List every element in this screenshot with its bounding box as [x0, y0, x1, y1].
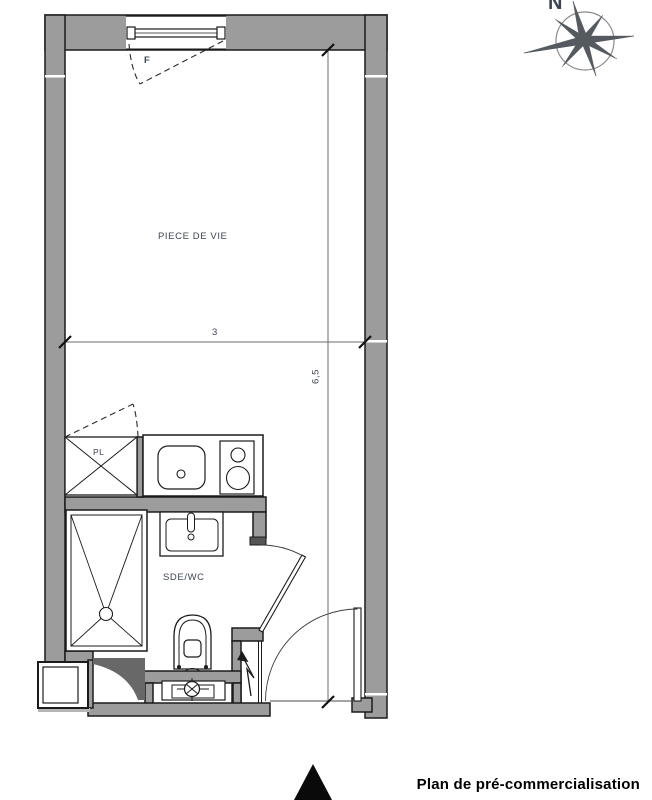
toilet: [174, 615, 211, 671]
wall-chase-strip-left: [145, 683, 153, 704]
window-jamb-right: [217, 27, 225, 39]
wall-bottom: [88, 703, 270, 716]
wall-left: [45, 15, 65, 663]
cooktop-burner-large: [227, 467, 250, 490]
room-label-bathroom: SDE/WC: [163, 572, 205, 583]
washbasin: [160, 512, 223, 556]
toilet-cistern-valve: [162, 678, 225, 701]
entrance-door: [266, 608, 362, 701]
kitchen-sink: [158, 446, 205, 489]
entrance-door-arc: [266, 609, 358, 701]
closet-door-dashed: [65, 404, 138, 437]
dimension-width-label: 3: [205, 327, 225, 338]
kitchen-counter: [143, 435, 263, 496]
toilet-flush: [184, 640, 201, 657]
door-hinge-block: [250, 537, 266, 545]
floor-plan-page: PIECE DE VIE SDE/WC PL F 3 6,5 N Plan de…: [0, 0, 652, 800]
compass-rose: [524, 1, 634, 76]
shower: [66, 510, 147, 651]
compass-north-label: N: [548, 0, 562, 15]
dimension-height-label: 6,5: [311, 364, 322, 390]
window-F: [126, 16, 226, 84]
wall-bath-right: [253, 512, 266, 538]
window-label: F: [144, 55, 150, 66]
exterior-box: [38, 662, 90, 712]
sink-drain: [177, 470, 185, 478]
shower-drain: [100, 608, 113, 621]
cooktop-burner-small: [231, 448, 245, 462]
window-jamb-left: [127, 27, 135, 39]
bathroom-door: [259, 545, 306, 632]
wall-right: [365, 15, 387, 718]
electric-riser-arrow: [244, 659, 254, 696]
wall-closet-top: [232, 628, 263, 641]
shadow-wedge: [93, 658, 145, 700]
bathroom-door-arc: [261, 545, 303, 556]
logo-triangle: [294, 764, 332, 800]
floor-plan-drawing: [0, 0, 652, 800]
room-label-living: PIECE DE VIE: [158, 231, 228, 242]
wall-pl-partition: [137, 437, 143, 497]
faucet: [188, 513, 195, 532]
plan-title: Plan de pré-commercialisation: [380, 776, 640, 793]
dimension-height: [322, 44, 334, 708]
room-label-closet: PL: [93, 447, 104, 457]
wall-chase-strip-right: [233, 683, 241, 704]
